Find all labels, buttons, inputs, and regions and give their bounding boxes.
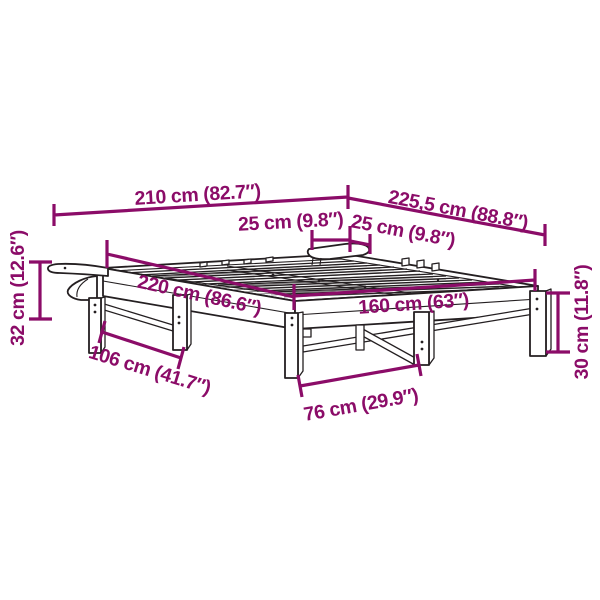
dim-label-leg-height: 30 cm (11.8″) (571, 265, 593, 380)
leg-screw (536, 298, 539, 301)
dim-label-bracket-height: 32 cm (12.6″) (7, 230, 29, 346)
dim-leg-height: 30 cm (11.8″) (546, 265, 593, 380)
wall-bracket-left-corbel (68, 276, 97, 300)
product-dimension-diagram: 210 cm (82.7″) 225,5 cm (88.8″) 25 cm (9… (0, 0, 600, 600)
leg-screw (94, 311, 97, 314)
screw-dot (318, 280, 321, 283)
leg-screw (421, 341, 424, 344)
centre-support-post (356, 325, 364, 350)
screw-dot (272, 274, 275, 277)
dim-label-side-leg-spacing: 106 cm (41.7″) (86, 341, 213, 399)
dim-label-bracket-depth: 25 cm (9.8″) (238, 208, 344, 235)
screw-dot (364, 286, 367, 289)
dim-side-leg-spacing: 106 cm (41.7″) (86, 321, 213, 399)
right-corner-leg (530, 291, 546, 356)
leg-screw (178, 322, 181, 325)
wall-bracket-left-plate (48, 264, 108, 276)
leg-screw (94, 304, 97, 307)
bracket-screw (64, 267, 67, 270)
leg-screw (421, 348, 424, 351)
diagram-svg: 210 cm (82.7″) 225,5 cm (88.8″) 25 cm (9… (0, 0, 600, 600)
screw-dot (437, 279, 439, 281)
side-brace (101, 303, 173, 331)
dim-label-overall-length: 210 cm (82.7″) (134, 180, 261, 210)
leg-screw (291, 317, 294, 320)
dim-front-leg-spacing: 76 cm (29.9″) (298, 354, 421, 426)
front-corner-leg (285, 313, 298, 378)
dim-label-front-leg-spacing: 76 cm (29.9″) (302, 384, 420, 426)
leg-screw (536, 308, 539, 311)
leg-screw (178, 316, 181, 319)
dim-bracket-height: 32 cm (12.6″) (7, 230, 52, 346)
leg-screw (291, 324, 294, 327)
